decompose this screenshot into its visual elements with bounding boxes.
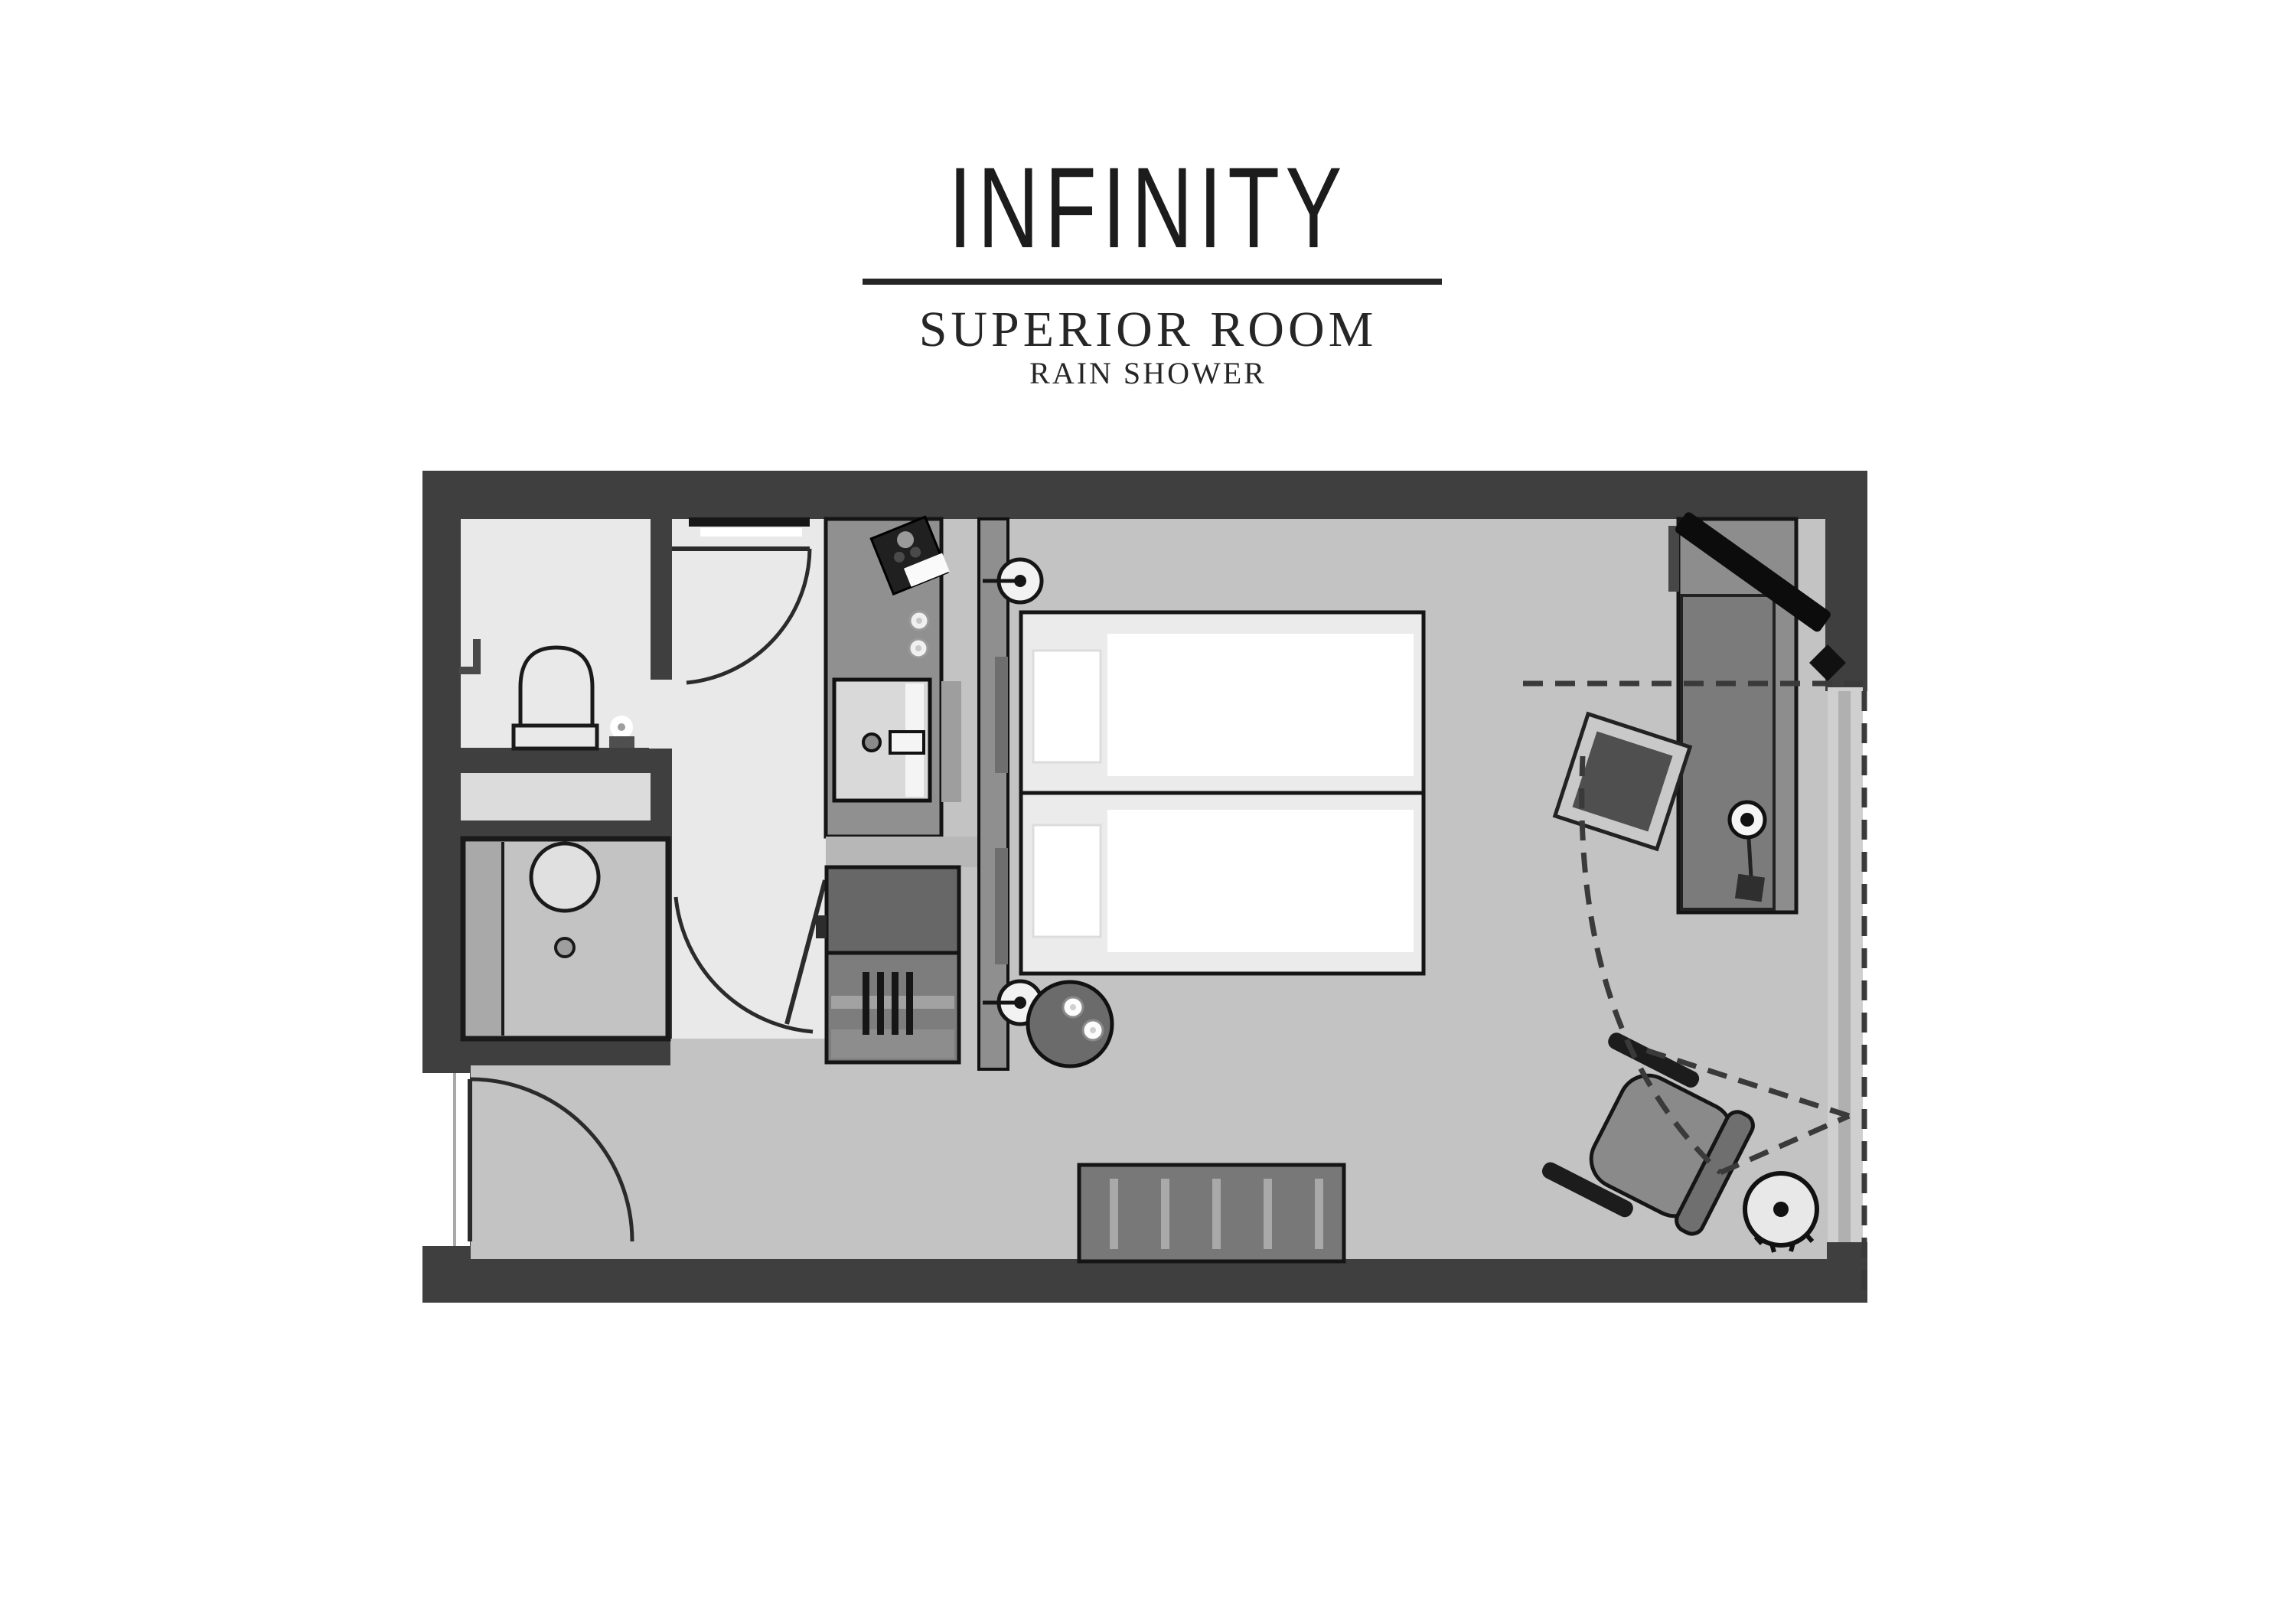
bedside-table	[1028, 982, 1112, 1066]
toilet-paper-core	[618, 723, 625, 731]
towel-rail-bar	[689, 517, 810, 527]
cup-center	[915, 645, 921, 651]
duvet	[1107, 634, 1414, 776]
shower-drain-icon	[556, 938, 574, 957]
towel-rail-white	[700, 528, 802, 537]
wardrobe-unit	[827, 867, 959, 953]
window-glass-line	[1838, 691, 1851, 1257]
tv-mount	[1668, 526, 1679, 592]
entrance-frame-line	[453, 1073, 456, 1246]
shower-bench	[466, 842, 503, 1036]
safe-knob-icon	[863, 734, 880, 751]
toilet-paper-base	[609, 736, 634, 748]
duvet	[1107, 810, 1414, 952]
floorplan-drawing	[0, 0, 2296, 1618]
shower-room	[463, 839, 668, 1039]
safe-handle	[890, 732, 924, 753]
wall-bottom-right-block	[1827, 1242, 1867, 1303]
floorplan-page: INFINITY SUPERIOR ROOM RAIN SHOWER	[0, 0, 2296, 1618]
headboard-panel	[995, 848, 1008, 964]
pillow	[1033, 825, 1101, 937]
entrance-opening	[422, 1073, 470, 1246]
pillow	[1033, 651, 1101, 762]
luggage-bench	[1079, 1165, 1344, 1261]
counter-ledge	[941, 681, 961, 802]
toilet-doorway	[649, 680, 673, 749]
rain-shower-head-icon	[531, 843, 598, 911]
counter-strip	[826, 837, 980, 867]
wall-niche-shelf	[461, 773, 651, 820]
desk-surface	[1681, 595, 1774, 909]
towel-hook-horizontal	[459, 667, 481, 674]
cup-center	[916, 618, 922, 624]
headboard-panel	[995, 657, 1008, 773]
wardrobe-hinge	[816, 915, 827, 938]
toilet-cistern	[514, 726, 597, 749]
